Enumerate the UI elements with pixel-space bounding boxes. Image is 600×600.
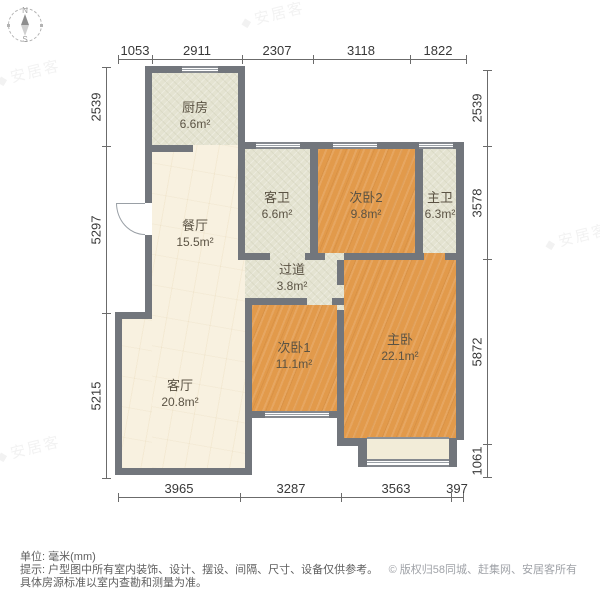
room-label-dining: 餐厅 15.5m² <box>176 218 213 250</box>
room-label-master-bath: 主卫 6.3m² <box>425 190 456 222</box>
dim-bottom-1: 3965 <box>165 481 194 496</box>
window-bedroom1 <box>265 411 329 418</box>
window-master-bath <box>419 142 453 149</box>
wall <box>145 66 152 155</box>
floor-balcony <box>367 438 449 461</box>
watermark: ◆安居客 <box>238 0 306 33</box>
entry-door-icon <box>116 203 145 235</box>
dim-right-2: 3578 <box>470 189 485 218</box>
floorplan-canvas: N S ◆安居客 ◆安居客 ◆安居客 ◆安居客 <box>0 0 600 600</box>
dim-bottom-2: 3287 <box>277 481 306 496</box>
dim-left-2: 5297 <box>89 216 104 245</box>
tip-note-2: 具体房源标准以室内查勘和测量为准。 <box>20 574 207 590</box>
dim-left-3: 5215 <box>89 382 104 411</box>
room-label-bedroom2: 次卧2 9.8m² <box>349 190 382 222</box>
compass-icon: N S <box>8 8 42 42</box>
wall <box>449 438 457 467</box>
dim-left-1: 2539 <box>89 93 104 122</box>
wall <box>344 253 424 260</box>
wall <box>305 253 325 260</box>
compass-west-dot <box>7 24 10 27</box>
room-label-hallway: 过道 3.8m² <box>277 262 308 294</box>
window-bedroom2 <box>333 142 377 149</box>
wall <box>415 142 423 260</box>
floor-dining <box>152 145 245 468</box>
wall <box>115 312 122 475</box>
room-label-living: 客厅 20.8m² <box>161 378 198 410</box>
wall <box>245 298 307 305</box>
wall <box>332 298 344 305</box>
floor-living <box>122 319 152 468</box>
wall <box>337 310 344 438</box>
wall <box>145 155 152 203</box>
dim-right-1: 2539 <box>470 94 485 123</box>
dim-top-2: 2911 <box>183 43 211 58</box>
wall <box>145 145 193 152</box>
room-label-guest-bath: 客卫 6.6m² <box>262 190 293 222</box>
room-label-kitchen: 厨房 6.6m² <box>180 100 211 132</box>
dim-bottom-3: 3563 <box>382 481 411 496</box>
window-guest-bath <box>256 142 300 149</box>
compass-needle-tail-icon <box>21 25 29 36</box>
dim-right-4: 1061 <box>470 447 485 476</box>
window-balcony <box>367 459 449 467</box>
wall <box>337 260 344 285</box>
wall <box>238 149 245 260</box>
dim-top-3: 2307 <box>263 43 292 58</box>
compass-needle-icon <box>21 14 29 25</box>
dim-bottom-4: 397 <box>446 481 468 496</box>
wall <box>245 298 252 475</box>
balcony-door-track <box>367 437 449 439</box>
window-kitchen <box>182 66 218 73</box>
room-label-bedroom1: 次卧1 11.1m² <box>276 340 312 372</box>
wall <box>358 438 367 467</box>
dim-top-5: 1822 <box>424 43 453 58</box>
wall <box>238 253 270 260</box>
wall <box>115 468 252 475</box>
compass-south-label: S <box>22 35 27 44</box>
dim-top-1: 1053 <box>121 43 150 58</box>
anjuke-logo-icon: ◆ <box>239 13 254 30</box>
wall <box>238 66 245 149</box>
wall <box>145 235 152 319</box>
room-label-master-bedroom: 主卧 22.1m² <box>381 332 418 364</box>
anjuke-logo-icon: ◆ <box>543 235 558 252</box>
compass-east-dot <box>40 24 43 27</box>
dim-top-4: 3118 <box>347 43 375 58</box>
watermark: ◆安居客 <box>0 54 63 90</box>
wall <box>310 142 318 260</box>
watermark: ◆安居客 <box>0 430 63 466</box>
wall <box>445 253 464 260</box>
watermark: ◆安居客 <box>542 218 600 254</box>
dim-right-3: 5872 <box>470 338 485 367</box>
copyright-note: © 版权归58同城、赶集网、安居客所有 <box>389 561 577 577</box>
wall <box>456 142 464 440</box>
